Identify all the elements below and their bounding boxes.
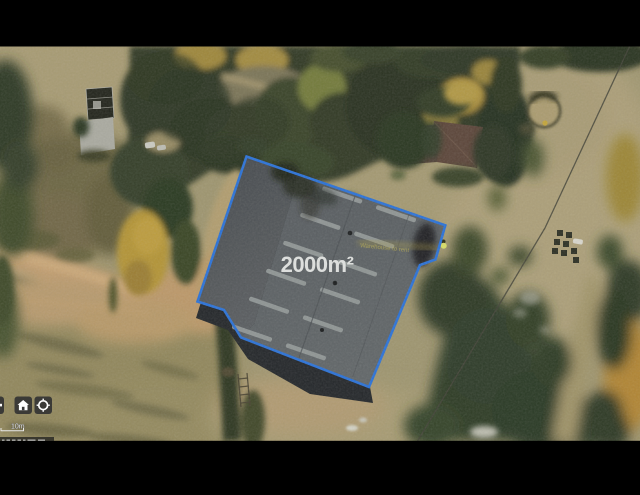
svg-text:10m: 10m [11, 424, 25, 431]
